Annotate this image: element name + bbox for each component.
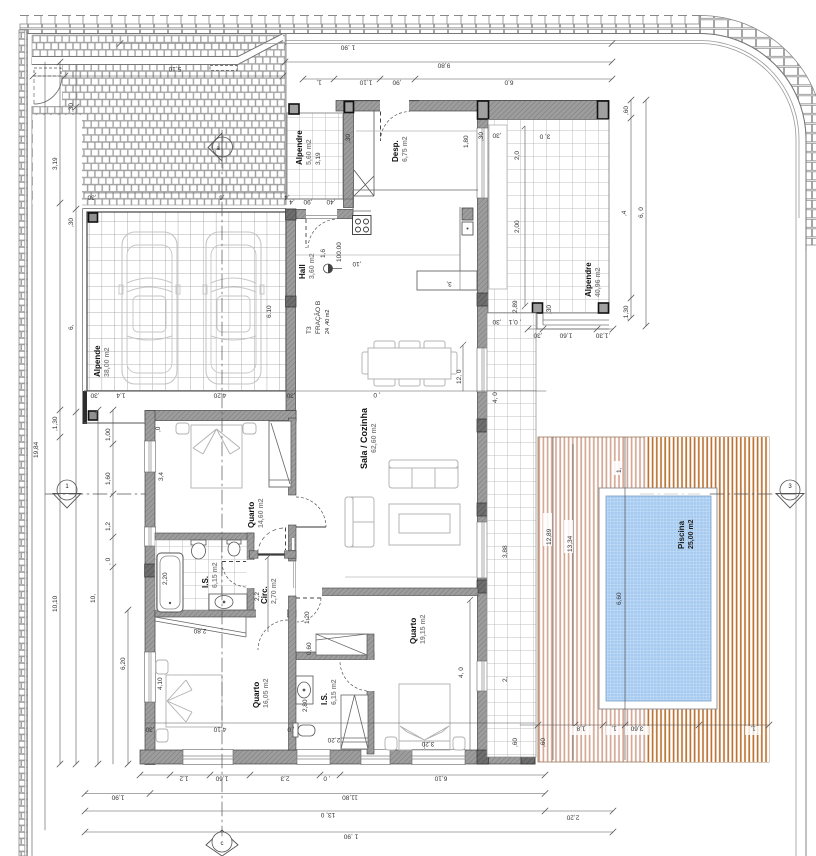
svg-text:13, 0: 13, 0 <box>320 811 335 818</box>
svg-text:13,34: 13,34 <box>567 535 574 552</box>
svg-text:5,10: 5,10 <box>168 65 181 72</box>
svg-text:14,60 m2: 14,60 m2 <box>258 498 265 528</box>
svg-text:Quarto: Quarto <box>252 682 261 708</box>
svg-text:,30: ,30 <box>87 194 96 201</box>
svg-text:I.S.: I.S. <box>201 576 210 588</box>
svg-text:Sala / Cozinha: Sala / Cozinha <box>359 407 369 469</box>
svg-text:3,19: 3,19 <box>315 152 322 165</box>
svg-text:,40: ,40 <box>326 198 335 205</box>
svg-text:,60: ,60 <box>540 738 547 747</box>
svg-text:100.00: 100.00 <box>336 242 343 262</box>
svg-text:19,15 m2: 19,15 m2 <box>420 614 427 644</box>
svg-text:10,10: 10,10 <box>52 595 59 612</box>
svg-text:6, 0: 6, 0 <box>638 207 645 218</box>
svg-text:3,19: 3,19 <box>52 157 59 170</box>
svg-text:,30: ,30 <box>68 103 75 112</box>
svg-text:2,20: 2,20 <box>162 572 169 585</box>
svg-text:,30: ,30 <box>492 132 501 139</box>
svg-text:3,60: 3,60 <box>630 725 643 732</box>
svg-text:1,10: 1,10 <box>359 79 372 86</box>
svg-text:,30: ,30 <box>286 392 295 399</box>
svg-text:,4: ,4 <box>621 210 628 216</box>
svg-text:10,: 10, <box>90 594 97 603</box>
svg-text:Quarto: Quarto <box>247 502 256 528</box>
svg-text:1,6: 1,6 <box>320 249 327 258</box>
svg-text:2,00: 2,00 <box>514 220 521 233</box>
svg-text:,4: ,4 <box>284 194 290 201</box>
svg-text:,60: ,60 <box>623 106 630 115</box>
svg-text:c: c <box>221 841 224 847</box>
svg-text:Alpende: Alpende <box>93 345 102 377</box>
svg-text:6,20: 6,20 <box>120 657 127 670</box>
svg-text:2,20: 2,20 <box>566 814 579 821</box>
svg-text:0,60: 0,60 <box>306 642 313 655</box>
svg-text:1,90: 1,90 <box>111 794 124 801</box>
svg-text:2,0: 2,0 <box>514 151 521 160</box>
svg-text:5,60 m2: 5,60 m2 <box>306 139 313 165</box>
svg-text:16,05 m2: 16,05 m2 <box>263 678 270 708</box>
svg-text:,30: ,30 <box>478 132 485 141</box>
svg-text:1,80: 1,80 <box>463 135 470 148</box>
svg-text:1,4: 1,4 <box>116 392 125 399</box>
svg-text:12, 0: 12, 0 <box>456 369 463 384</box>
svg-text:4,10: 4,10 <box>213 726 226 733</box>
svg-text:1 ,90: 1 ,90 <box>343 833 358 840</box>
svg-text:1,2: 1,2 <box>179 775 188 782</box>
svg-text:2,3: 2,3 <box>280 775 289 782</box>
svg-text:2,20: 2,20 <box>327 736 340 743</box>
svg-text:,0: ,0 <box>155 426 162 432</box>
svg-text:6,: 6, <box>68 324 75 330</box>
svg-text:Quarto: Quarto <box>409 618 418 644</box>
svg-text:11,80: 11,80 <box>342 794 358 801</box>
svg-text:19,84: 19,84 <box>33 441 40 458</box>
svg-text:4, 0: 4, 0 <box>458 667 465 678</box>
svg-text:,1,30: ,1,30 <box>52 416 59 431</box>
svg-text:3,88: 3,88 <box>502 545 509 558</box>
svg-text:9,80: 9,80 <box>437 62 450 69</box>
svg-text:,30: ,30 <box>68 218 75 227</box>
svg-text:1,: 1, <box>316 79 322 86</box>
svg-text:,30: ,30 <box>90 392 99 399</box>
svg-text:3,4: 3,4 <box>158 472 165 481</box>
svg-text:Hall: Hall <box>298 264 307 279</box>
svg-text:6,15 m2: 6,15 m2 <box>212 562 219 588</box>
svg-text:1,2: 1,2 <box>105 522 112 531</box>
svg-text:1,: 1, <box>611 725 617 732</box>
svg-text:FRAÇÃO B: FRAÇÃO B <box>313 301 322 334</box>
svg-text:1 ,90: 1 ,90 <box>340 44 355 51</box>
svg-text:,10: ,10 <box>352 260 361 267</box>
svg-text:,30: ,30 <box>145 726 154 733</box>
svg-text:1,20: 1,20 <box>304 611 311 624</box>
svg-text:,30: ,30 <box>492 318 501 325</box>
svg-text:6,10: 6,10 <box>434 775 447 782</box>
svg-text:T3: T3 <box>306 326 313 334</box>
svg-text:1,: 1, <box>750 725 756 732</box>
svg-text:6,0: 6,0 <box>504 79 513 86</box>
svg-text:,30: ,30 <box>546 305 553 314</box>
svg-text:3,: 3, <box>446 280 452 287</box>
svg-text:6,75 m2: 6,75 m2 <box>402 136 409 162</box>
svg-text:2,89: 2,89 <box>512 300 519 313</box>
svg-text:4,20: 4,20 <box>213 392 226 399</box>
svg-text:,1,30: ,1,30 <box>595 332 610 339</box>
svg-text:1,60: 1,60 <box>559 332 572 339</box>
svg-text:3,60 m2: 3,60 m2 <box>309 253 316 279</box>
svg-text:12,89: 12,89 <box>546 528 553 545</box>
svg-text:62,60 m2: 62,60 m2 <box>371 423 378 453</box>
svg-text:2,: 2, <box>502 676 509 682</box>
svg-text:2,70 m2: 2,70 m2 <box>271 578 278 604</box>
svg-text:1,: 1, <box>616 467 623 473</box>
svg-text:1,8: 1,8 <box>576 725 585 732</box>
svg-text:,60: ,60 <box>512 738 519 747</box>
svg-text:4,10: 4,10 <box>157 677 164 690</box>
svg-text:1,00: 1,00 <box>105 428 112 441</box>
svg-text:Alpendre: Alpendre <box>584 262 593 297</box>
svg-text:, 0: , 0 <box>323 775 331 782</box>
svg-text:, 0: , 0 <box>105 557 112 565</box>
svg-text:Alpendre: Alpendre <box>295 130 304 165</box>
svg-text:,1,30: ,1,30 <box>623 305 630 320</box>
svg-text:6,60: 6,60 <box>616 592 623 605</box>
svg-text:,30: ,30 <box>345 134 352 143</box>
svg-text:1,60: 1,60 <box>105 472 112 485</box>
svg-text:I.S.: I.S. <box>320 693 329 705</box>
svg-text:, 0: , 0 <box>373 391 381 398</box>
svg-text:,90: ,90 <box>392 79 401 86</box>
svg-text:6.10: 6.10 <box>266 305 273 318</box>
svg-text:24 ,40 m2: 24 ,40 m2 <box>325 310 331 334</box>
svg-text:3, 0: 3, 0 <box>539 133 550 140</box>
svg-text:, 0: , 0 <box>287 726 295 733</box>
svg-text:Circ.: Circ. <box>260 586 269 604</box>
svg-text:6,15 m2: 6,15 m2 <box>331 679 338 705</box>
svg-text:,90: ,90 <box>303 198 312 205</box>
svg-text:40,96 m2: 40,96 m2 <box>595 267 602 297</box>
svg-text:, 0,1: , 0,1 <box>508 318 521 325</box>
svg-text:25,00 m2: 25,00 m2 <box>688 519 695 549</box>
svg-text:Piscina: Piscina <box>677 520 686 549</box>
svg-text:38,00 m2: 38,00 m2 <box>104 347 111 377</box>
svg-text:2,80: 2,80 <box>193 627 206 634</box>
svg-text:3,20: 3,20 <box>421 740 434 747</box>
svg-text:2,80: 2,80 <box>302 699 309 712</box>
svg-text:Desp.: Desp. <box>391 140 400 162</box>
svg-text:,30: ,30 <box>533 332 542 339</box>
svg-text:4, 0: 4, 0 <box>492 392 499 403</box>
